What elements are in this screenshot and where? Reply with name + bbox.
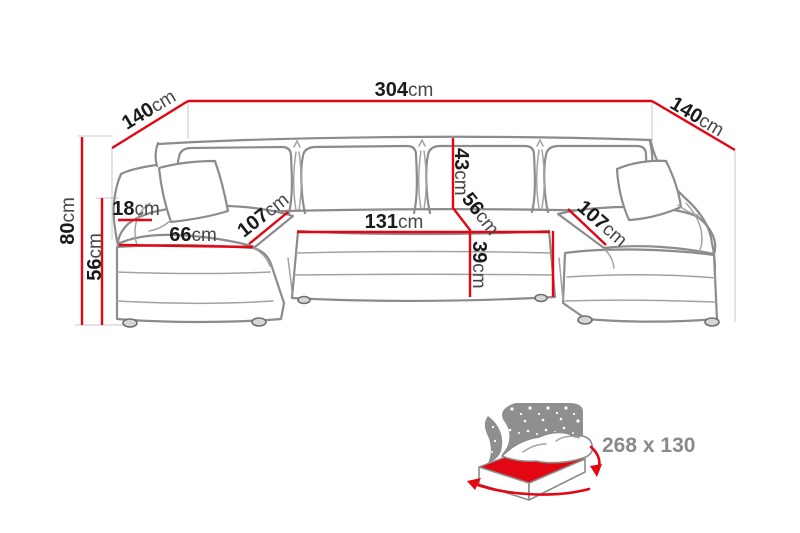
unfold-arrow-right-head [590, 464, 602, 477]
star-dot [546, 406, 549, 409]
star-dot [576, 419, 579, 422]
star-dot [524, 420, 527, 423]
star-dot [560, 418, 563, 421]
right-chaise-front-face [563, 249, 717, 321]
star-dot [573, 413, 575, 415]
star-dot [528, 406, 531, 409]
star-dot [542, 419, 545, 422]
dim-label-backrest-height: 43cm [450, 148, 472, 196]
sofa-foot [123, 319, 137, 327]
sleeping-area-size: 268 x 130 [602, 434, 695, 457]
back-cushion [301, 146, 417, 213]
sofa-dimension-drawing: 304cm 140cm 140cm 80cm 56cm 18cm 66cm 10… [0, 0, 800, 533]
star-dot [520, 413, 522, 415]
left-pillow [159, 161, 228, 222]
star-dot [492, 426, 494, 428]
sofa-foot [252, 318, 266, 326]
star-dot [491, 451, 493, 453]
star-dot [509, 429, 512, 432]
left-arm-ledge [121, 165, 156, 174]
star-dot [572, 432, 574, 434]
dim-label-seat-front-height: 39cm [468, 241, 490, 289]
dim-label-center-seat-width: 131cm [365, 211, 424, 233]
dim-label-base-height: 56cm [84, 233, 106, 281]
sofa-foot [298, 297, 310, 304]
star-dot [518, 432, 520, 434]
star-dot [564, 406, 567, 409]
star-dot [538, 413, 540, 415]
dim-label-overall-height: 80cm [57, 197, 79, 245]
night-sky-crescent [485, 416, 502, 463]
backrest-left-end [156, 143, 158, 166]
center-front-face [292, 231, 555, 301]
dim-label-left-depth: 140cm [118, 85, 180, 134]
sofa-foot [535, 295, 547, 302]
star-dot [556, 412, 558, 414]
left-chaise-front-face [117, 245, 284, 322]
star-dot [510, 407, 513, 410]
sleeping-function-icon: 268 x 130 [467, 403, 695, 500]
dimension-diagram: 304cm 140cm 140cm 80cm 56cm 18cm 66cm 10… [0, 0, 800, 533]
sofa-foot [705, 318, 719, 326]
star-dot [545, 429, 548, 432]
sofa-foot [578, 316, 592, 324]
star-dot [527, 430, 530, 433]
star-dot [494, 440, 496, 442]
dim-label-total-width: 304cm [375, 79, 434, 101]
dim-label-chaise-front-width: 66cm [169, 224, 217, 246]
dim-label-right-depth: 140cm [666, 92, 728, 141]
right-pillow [617, 161, 681, 220]
dim-label-armrest-width: 18cm [112, 198, 160, 220]
star-dot [536, 433, 538, 435]
star-dot [563, 427, 566, 430]
